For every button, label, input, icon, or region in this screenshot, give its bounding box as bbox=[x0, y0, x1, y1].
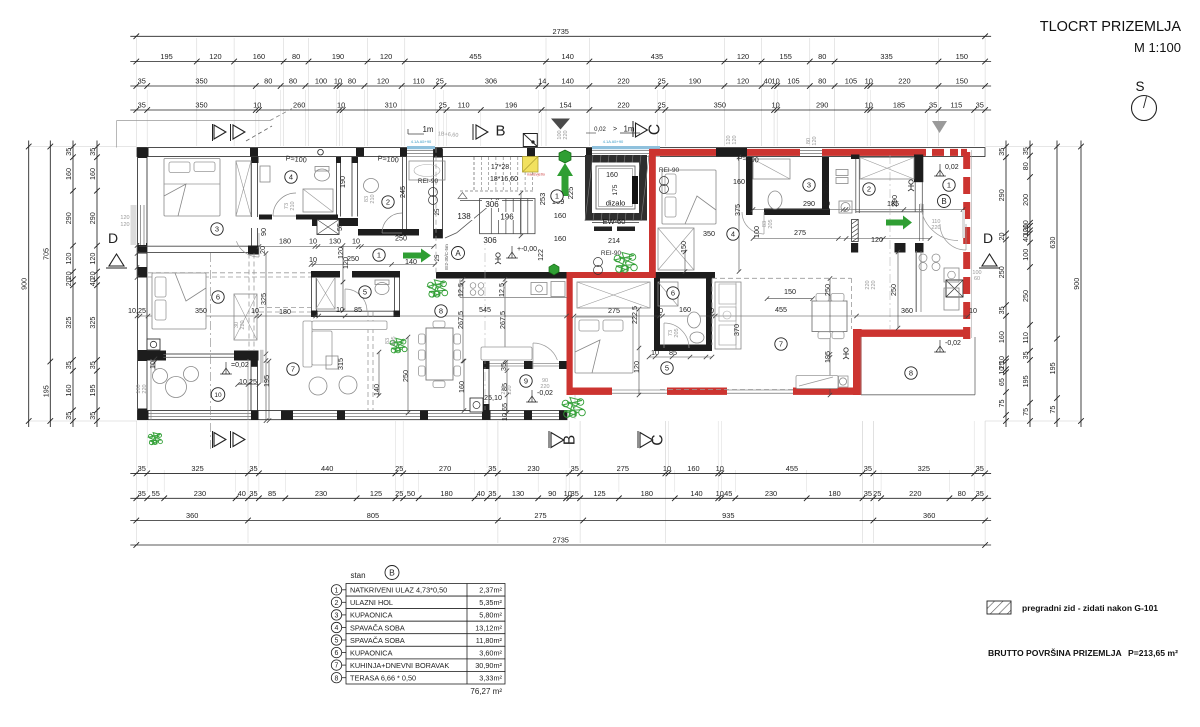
svg-text:190: 190 bbox=[689, 77, 701, 86]
svg-text:310: 310 bbox=[385, 101, 397, 110]
svg-text:120: 120 bbox=[88, 253, 97, 265]
svg-text:160: 160 bbox=[554, 211, 567, 220]
svg-text:25: 25 bbox=[395, 464, 403, 473]
svg-text:35: 35 bbox=[997, 306, 1006, 314]
svg-text:306: 306 bbox=[485, 200, 499, 209]
svg-text:190: 190 bbox=[338, 176, 347, 188]
svg-text:6: 6 bbox=[335, 650, 339, 657]
svg-text:3,33m²: 3,33m² bbox=[479, 674, 502, 683]
svg-text:220: 220 bbox=[617, 77, 629, 86]
svg-text:205: 205 bbox=[674, 328, 680, 337]
svg-text:350: 350 bbox=[714, 101, 726, 110]
svg-text:90: 90 bbox=[548, 489, 556, 498]
svg-text:160: 160 bbox=[733, 177, 745, 186]
svg-text:120: 120 bbox=[812, 136, 818, 145]
svg-text:375: 375 bbox=[733, 204, 742, 216]
svg-text:140: 140 bbox=[690, 489, 702, 498]
svg-text:65: 65 bbox=[997, 378, 1006, 386]
svg-text:8: 8 bbox=[335, 675, 339, 682]
svg-text:7: 7 bbox=[335, 663, 339, 670]
svg-text:-0,02: -0,02 bbox=[945, 340, 961, 347]
svg-text:35: 35 bbox=[249, 464, 257, 473]
svg-text:20: 20 bbox=[64, 278, 73, 286]
svg-text:2735: 2735 bbox=[552, 536, 568, 545]
svg-text:120: 120 bbox=[120, 222, 129, 228]
svg-text:220: 220 bbox=[871, 280, 877, 289]
svg-text:105: 105 bbox=[845, 77, 857, 86]
svg-text:stan: stan bbox=[350, 571, 365, 580]
svg-text:0,02: 0,02 bbox=[594, 127, 606, 133]
svg-text:360: 360 bbox=[901, 306, 913, 315]
svg-text:TERASA 6,66 * 0,50: TERASA 6,66 * 0,50 bbox=[350, 674, 416, 683]
svg-text:185: 185 bbox=[893, 101, 905, 110]
svg-text:REI-90: REI-90 bbox=[601, 250, 622, 257]
svg-text:325: 325 bbox=[918, 464, 930, 473]
svg-text:12,5: 12,5 bbox=[497, 283, 506, 297]
svg-text:125: 125 bbox=[593, 489, 605, 498]
svg-text:195: 195 bbox=[823, 351, 832, 363]
svg-text:35: 35 bbox=[138, 101, 146, 110]
svg-text:10: 10 bbox=[655, 306, 663, 315]
svg-text:120: 120 bbox=[632, 361, 641, 373]
svg-text:90: 90 bbox=[259, 228, 268, 236]
svg-text:10: 10 bbox=[997, 367, 1006, 375]
svg-text:10: 10 bbox=[214, 392, 222, 399]
svg-text:60: 60 bbox=[974, 276, 980, 282]
svg-text:P=213,65 m²: P=213,65 m² bbox=[1128, 648, 1178, 658]
svg-text:EW-60: EW-60 bbox=[603, 217, 626, 226]
svg-text:250: 250 bbox=[1021, 290, 1030, 302]
svg-text:210: 210 bbox=[290, 201, 296, 210]
svg-text:35: 35 bbox=[864, 489, 872, 498]
svg-text:150: 150 bbox=[784, 287, 796, 296]
svg-text:C: C bbox=[650, 434, 667, 445]
svg-text:325: 325 bbox=[259, 293, 268, 305]
svg-text:230: 230 bbox=[527, 464, 539, 473]
svg-text:140: 140 bbox=[405, 257, 417, 266]
svg-text:40: 40 bbox=[1021, 234, 1030, 242]
svg-text:455: 455 bbox=[786, 464, 798, 473]
svg-text:195: 195 bbox=[1021, 375, 1030, 387]
svg-text:35: 35 bbox=[1021, 147, 1030, 155]
svg-text:REI-90: REI-90 bbox=[659, 167, 680, 174]
svg-text:3: 3 bbox=[215, 225, 219, 234]
svg-text:160: 160 bbox=[687, 464, 699, 473]
svg-text:154: 154 bbox=[559, 101, 571, 110]
svg-text:85: 85 bbox=[268, 489, 276, 498]
svg-text:18*16,60: 18*16,60 bbox=[490, 176, 518, 183]
svg-text:=0,02: =0,02 bbox=[231, 362, 249, 369]
svg-text:175: 175 bbox=[612, 184, 619, 195]
svg-text:25,10: 25,10 bbox=[484, 393, 502, 402]
svg-text:350: 350 bbox=[195, 77, 207, 86]
svg-text:360: 360 bbox=[923, 511, 935, 520]
svg-text:80: 80 bbox=[958, 489, 966, 498]
svg-text:5: 5 bbox=[335, 638, 339, 645]
svg-text:160: 160 bbox=[554, 234, 567, 243]
svg-text:SPAVAČA SOBA: SPAVAČA SOBA bbox=[350, 636, 405, 645]
svg-text:230: 230 bbox=[765, 489, 777, 498]
svg-text:35: 35 bbox=[976, 489, 984, 498]
svg-text:350: 350 bbox=[195, 101, 207, 110]
svg-text:B: B bbox=[495, 123, 505, 140]
svg-text:805: 805 bbox=[367, 511, 379, 520]
svg-text:440: 440 bbox=[321, 464, 333, 473]
svg-text:35: 35 bbox=[138, 77, 146, 86]
svg-text:10: 10 bbox=[336, 305, 344, 314]
svg-text:80: 80 bbox=[348, 77, 356, 86]
svg-text:1m: 1m bbox=[623, 125, 634, 134]
svg-text:160: 160 bbox=[253, 52, 265, 61]
svg-text:110: 110 bbox=[413, 77, 425, 86]
svg-text:25: 25 bbox=[873, 489, 881, 498]
svg-text:160: 160 bbox=[457, 381, 466, 393]
svg-text:B: B bbox=[389, 568, 395, 578]
svg-text:14: 14 bbox=[538, 77, 546, 86]
svg-text:35: 35 bbox=[929, 101, 937, 110]
svg-text:25: 25 bbox=[436, 77, 444, 86]
svg-text:A: A bbox=[455, 249, 461, 258]
svg-text:10: 10 bbox=[716, 464, 724, 473]
svg-text:40: 40 bbox=[238, 489, 246, 498]
svg-text:nadsvjetlo: nadsvjetlo bbox=[527, 172, 546, 177]
svg-text:900: 900 bbox=[1072, 278, 1081, 290]
svg-text:EI2-30/C-5m: EI2-30/C-5m bbox=[444, 244, 449, 270]
svg-text:25: 25 bbox=[657, 77, 665, 86]
svg-text:122: 122 bbox=[538, 249, 545, 261]
svg-text:120: 120 bbox=[380, 52, 392, 61]
svg-text:10: 10 bbox=[334, 77, 342, 86]
svg-text:325: 325 bbox=[191, 464, 203, 473]
svg-text:455: 455 bbox=[469, 52, 481, 61]
svg-text:80: 80 bbox=[289, 77, 297, 86]
svg-text:455: 455 bbox=[775, 305, 787, 314]
svg-text:290: 290 bbox=[88, 212, 97, 224]
svg-text:10: 10 bbox=[253, 101, 261, 110]
svg-text:335: 335 bbox=[880, 52, 892, 61]
svg-text:350: 350 bbox=[195, 306, 207, 315]
svg-text:76,27 m²: 76,27 m² bbox=[470, 687, 502, 696]
svg-text:275: 275 bbox=[794, 228, 806, 237]
svg-text:900: 900 bbox=[20, 278, 29, 290]
svg-text:10: 10 bbox=[865, 77, 873, 86]
svg-text:275: 275 bbox=[534, 511, 546, 520]
svg-text:80: 80 bbox=[818, 52, 826, 61]
svg-text:35: 35 bbox=[64, 412, 73, 420]
svg-text:10: 10 bbox=[706, 306, 714, 315]
svg-text:325: 325 bbox=[88, 317, 97, 329]
svg-text:120: 120 bbox=[732, 135, 738, 144]
svg-text:KUHINJA+DNEVNI BORAVAK: KUHINJA+DNEVNI BORAVAK bbox=[350, 661, 449, 670]
svg-text:130: 130 bbox=[329, 237, 341, 246]
svg-text:75: 75 bbox=[1021, 408, 1030, 416]
svg-text:REI-90: REI-90 bbox=[418, 178, 439, 185]
svg-text:85: 85 bbox=[669, 348, 677, 357]
svg-text:10: 10 bbox=[771, 77, 779, 86]
svg-text:125: 125 bbox=[370, 489, 382, 498]
svg-text:120: 120 bbox=[209, 52, 221, 61]
svg-text:11,80m²: 11,80m² bbox=[476, 636, 503, 645]
svg-text:10,25: 10,25 bbox=[128, 306, 146, 315]
svg-text:140: 140 bbox=[372, 384, 381, 396]
svg-text:10,65: 10,65 bbox=[500, 403, 509, 421]
svg-text:80: 80 bbox=[818, 77, 826, 86]
svg-text:75: 75 bbox=[997, 400, 1006, 408]
svg-text:120: 120 bbox=[120, 215, 129, 221]
svg-text:10: 10 bbox=[337, 101, 345, 110]
svg-text:130: 130 bbox=[512, 489, 524, 498]
svg-text:4: 4 bbox=[335, 625, 339, 632]
svg-text:150: 150 bbox=[956, 77, 968, 86]
svg-text:100: 100 bbox=[1021, 249, 1030, 261]
svg-text:75: 75 bbox=[1048, 406, 1057, 414]
svg-text:180: 180 bbox=[440, 489, 452, 498]
svg-text:267,5: 267,5 bbox=[498, 311, 507, 329]
svg-text:35: 35 bbox=[864, 464, 872, 473]
svg-text:140: 140 bbox=[562, 52, 574, 61]
svg-text:7: 7 bbox=[291, 365, 295, 374]
svg-text:260: 260 bbox=[293, 101, 305, 110]
svg-text:80: 80 bbox=[292, 52, 300, 61]
svg-text:120: 120 bbox=[737, 77, 749, 86]
svg-text:35: 35 bbox=[571, 489, 579, 498]
svg-text:150: 150 bbox=[956, 52, 968, 61]
svg-text:20: 20 bbox=[88, 271, 97, 279]
svg-text:270: 270 bbox=[439, 464, 451, 473]
svg-text:10: 10 bbox=[309, 255, 317, 264]
svg-text:8: 8 bbox=[439, 307, 443, 316]
svg-text:306: 306 bbox=[483, 236, 497, 245]
svg-text:35: 35 bbox=[249, 489, 257, 498]
svg-text:7: 7 bbox=[779, 340, 783, 349]
svg-text:35: 35 bbox=[138, 464, 146, 473]
svg-text:35: 35 bbox=[976, 101, 984, 110]
svg-text:220: 220 bbox=[563, 130, 569, 139]
svg-text:435: 435 bbox=[651, 52, 663, 61]
svg-text:138: 138 bbox=[457, 212, 471, 221]
svg-text:290: 290 bbox=[816, 101, 828, 110]
svg-text:245: 245 bbox=[398, 186, 407, 198]
svg-text:10: 10 bbox=[822, 199, 830, 208]
svg-text:120: 120 bbox=[64, 253, 73, 265]
svg-text:25: 25 bbox=[435, 254, 441, 261]
svg-text:+-0,00: +-0,00 bbox=[517, 246, 537, 253]
svg-text:267,5: 267,5 bbox=[456, 311, 465, 329]
svg-text:160: 160 bbox=[997, 331, 1006, 343]
svg-text:250: 250 bbox=[401, 370, 410, 382]
svg-text:220: 220 bbox=[540, 384, 549, 390]
svg-text:5: 5 bbox=[665, 364, 669, 373]
svg-text:C: C bbox=[647, 124, 664, 135]
svg-text:705: 705 bbox=[41, 248, 50, 260]
svg-text:315: 315 bbox=[336, 358, 345, 370]
svg-text:5,35m²: 5,35m² bbox=[479, 598, 502, 607]
svg-text:10: 10 bbox=[309, 237, 317, 246]
svg-text:B: B bbox=[562, 435, 579, 445]
svg-text:180: 180 bbox=[279, 307, 291, 316]
svg-text:230: 230 bbox=[194, 489, 206, 498]
svg-text:35: 35 bbox=[64, 361, 73, 369]
svg-text:10: 10 bbox=[716, 489, 724, 498]
svg-text:55: 55 bbox=[152, 489, 160, 498]
svg-text:12,5: 12,5 bbox=[456, 283, 465, 297]
svg-text:250: 250 bbox=[889, 284, 898, 296]
svg-text:190: 190 bbox=[332, 52, 344, 61]
svg-text:195: 195 bbox=[41, 385, 50, 397]
svg-text:220: 220 bbox=[909, 489, 921, 498]
svg-text:-0,02: -0,02 bbox=[537, 390, 553, 397]
svg-text:220: 220 bbox=[898, 77, 910, 86]
svg-text:220: 220 bbox=[617, 101, 629, 110]
svg-text:KUPAONICA: KUPAONICA bbox=[350, 611, 393, 620]
svg-text:35: 35 bbox=[1021, 351, 1030, 359]
svg-text:6: 6 bbox=[216, 293, 220, 302]
svg-text:6: 6 bbox=[671, 289, 675, 298]
svg-text:25: 25 bbox=[657, 101, 665, 110]
svg-text:250: 250 bbox=[395, 234, 407, 243]
svg-text:4: 4 bbox=[289, 173, 293, 182]
svg-text:1: 1 bbox=[335, 587, 339, 594]
svg-text:214: 214 bbox=[608, 236, 620, 245]
svg-text:205: 205 bbox=[768, 219, 774, 228]
svg-text:4.1A A5+90: 4.1A A5+90 bbox=[603, 139, 624, 144]
svg-text:220: 220 bbox=[931, 225, 940, 231]
svg-text:370: 370 bbox=[732, 324, 741, 336]
svg-text:5: 5 bbox=[363, 288, 367, 297]
svg-text:35: 35 bbox=[88, 361, 97, 369]
svg-text:55: 55 bbox=[335, 223, 344, 231]
svg-text:35: 35 bbox=[997, 148, 1006, 156]
svg-text:222,5: 222,5 bbox=[630, 306, 639, 324]
svg-text:195: 195 bbox=[262, 375, 271, 387]
svg-text:D: D bbox=[108, 230, 118, 246]
svg-text:13,12m²: 13,12m² bbox=[475, 623, 502, 632]
svg-text:150: 150 bbox=[679, 241, 688, 253]
svg-text:35: 35 bbox=[976, 464, 984, 473]
svg-text:B: B bbox=[941, 197, 946, 206]
svg-text:200: 200 bbox=[1021, 194, 1030, 206]
svg-text:TLOCRT PRIZEMLJA: TLOCRT PRIZEMLJA bbox=[1040, 19, 1182, 35]
svg-text:85: 85 bbox=[354, 305, 362, 314]
svg-text:10: 10 bbox=[251, 306, 259, 315]
svg-text:10: 10 bbox=[771, 101, 779, 110]
svg-text:105: 105 bbox=[787, 77, 799, 86]
svg-text:325: 325 bbox=[64, 317, 73, 329]
svg-text:dizalo: dizalo bbox=[606, 199, 626, 208]
svg-text:200: 200 bbox=[822, 182, 831, 194]
svg-text:10: 10 bbox=[969, 306, 977, 315]
svg-text:40: 40 bbox=[88, 278, 97, 286]
svg-text:3: 3 bbox=[335, 613, 339, 620]
svg-text:2: 2 bbox=[386, 198, 390, 207]
svg-text:195: 195 bbox=[160, 52, 172, 61]
svg-text:35: 35 bbox=[88, 412, 97, 420]
svg-text:100: 100 bbox=[315, 77, 327, 86]
svg-text:10: 10 bbox=[352, 237, 360, 246]
svg-text:205: 205 bbox=[391, 336, 397, 345]
svg-text:196: 196 bbox=[500, 213, 514, 222]
svg-text:1: 1 bbox=[555, 192, 559, 201]
svg-text:1: 1 bbox=[947, 181, 951, 190]
svg-text:1: 1 bbox=[377, 251, 381, 260]
svg-text:pregradni zid - zidati nakon G: pregradni zid - zidati nakon G-101 bbox=[1022, 603, 1158, 613]
svg-text:110: 110 bbox=[1021, 332, 1030, 343]
svg-text:306: 306 bbox=[485, 77, 497, 86]
svg-text:290: 290 bbox=[803, 199, 815, 208]
svg-text:25: 25 bbox=[439, 101, 447, 110]
svg-text:40: 40 bbox=[477, 489, 485, 498]
svg-text:140: 140 bbox=[562, 77, 574, 86]
svg-text:2,37m²: 2,37m² bbox=[479, 586, 502, 595]
svg-text:20: 20 bbox=[258, 246, 267, 254]
svg-text:10: 10 bbox=[865, 101, 873, 110]
svg-text:160: 160 bbox=[606, 172, 618, 179]
svg-text:30,90m²: 30,90m² bbox=[475, 661, 502, 670]
svg-text:115: 115 bbox=[951, 101, 963, 110]
svg-text:195: 195 bbox=[88, 385, 97, 397]
svg-text:M 1:100: M 1:100 bbox=[1134, 40, 1181, 55]
svg-text:290: 290 bbox=[997, 189, 1006, 201]
svg-text:160: 160 bbox=[88, 168, 97, 180]
svg-text:630: 630 bbox=[1048, 237, 1057, 249]
svg-text:10,25: 10,25 bbox=[239, 377, 257, 386]
svg-text:35: 35 bbox=[488, 464, 496, 473]
svg-text:SPAVAČA SOBA: SPAVAČA SOBA bbox=[350, 623, 405, 632]
svg-text:195: 195 bbox=[1048, 362, 1057, 374]
svg-text:4.1A A5+90: 4.1A A5+90 bbox=[411, 139, 432, 144]
svg-text:253: 253 bbox=[538, 193, 547, 206]
svg-text:8: 8 bbox=[909, 369, 913, 378]
svg-text:KUPAONICA: KUPAONICA bbox=[350, 648, 393, 657]
svg-text:20: 20 bbox=[64, 271, 73, 279]
svg-text:220: 220 bbox=[142, 384, 148, 393]
svg-text:180: 180 bbox=[828, 489, 840, 498]
svg-text:120: 120 bbox=[341, 257, 350, 269]
svg-text:160: 160 bbox=[679, 305, 691, 314]
svg-text:BRUTTO POVRŠINA PRIZEMLJA: BRUTTO POVRŠINA PRIZEMLJA bbox=[988, 647, 1122, 658]
svg-text:17*28: 17*28 bbox=[491, 164, 509, 171]
svg-text:196: 196 bbox=[505, 101, 517, 110]
svg-text:35: 35 bbox=[488, 489, 496, 498]
svg-text:35: 35 bbox=[499, 363, 508, 371]
svg-text:275: 275 bbox=[608, 306, 620, 315]
svg-text:3: 3 bbox=[807, 181, 811, 190]
svg-text:360: 360 bbox=[186, 511, 198, 520]
svg-text:35: 35 bbox=[64, 148, 73, 156]
svg-text:ULAZNI HOL: ULAZNI HOL bbox=[350, 598, 393, 607]
svg-text:220: 220 bbox=[507, 385, 513, 394]
svg-text:220: 220 bbox=[240, 320, 246, 329]
svg-text:120: 120 bbox=[871, 235, 883, 244]
svg-text:250: 250 bbox=[823, 284, 832, 296]
svg-text:110: 110 bbox=[458, 101, 470, 110]
svg-text:100: 100 bbox=[752, 226, 761, 238]
svg-text:350: 350 bbox=[703, 229, 715, 238]
svg-text:1m: 1m bbox=[422, 125, 433, 134]
svg-text:>: > bbox=[613, 126, 617, 133]
svg-text:80: 80 bbox=[1021, 162, 1030, 170]
svg-text:25: 25 bbox=[395, 489, 403, 498]
svg-text:25: 25 bbox=[435, 208, 441, 215]
svg-text:20: 20 bbox=[997, 233, 1006, 241]
svg-text:4: 4 bbox=[731, 230, 735, 239]
svg-text:5,80m²: 5,80m² bbox=[479, 611, 502, 620]
svg-text:10: 10 bbox=[150, 361, 156, 367]
svg-text:80: 80 bbox=[264, 77, 272, 86]
svg-text:2735: 2735 bbox=[552, 27, 568, 36]
svg-text:120: 120 bbox=[737, 52, 749, 61]
svg-text:S: S bbox=[1135, 79, 1144, 94]
